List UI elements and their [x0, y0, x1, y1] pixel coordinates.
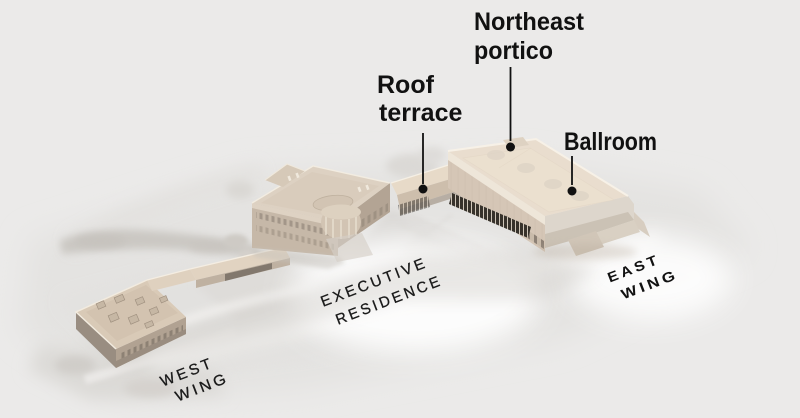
svg-text:Ballroom: Ballroom [564, 128, 657, 156]
svg-text:terrace: terrace [379, 99, 462, 127]
svg-text:portico: portico [474, 37, 553, 65]
svg-text:Northeast: Northeast [474, 8, 585, 36]
svg-text:Roof: Roof [377, 71, 435, 99]
